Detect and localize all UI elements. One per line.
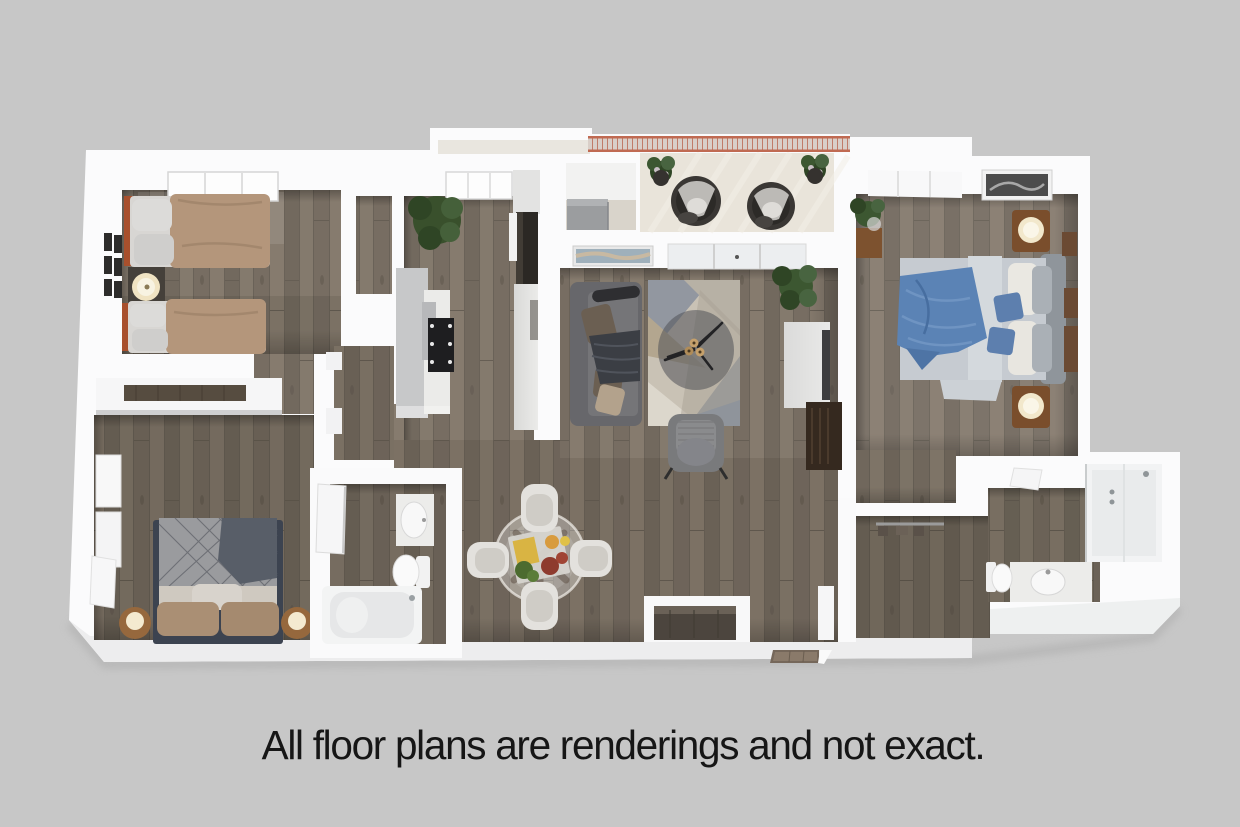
svg-text:All floor plans are renderings: All floor plans are renderings and not e… — [262, 722, 985, 768]
